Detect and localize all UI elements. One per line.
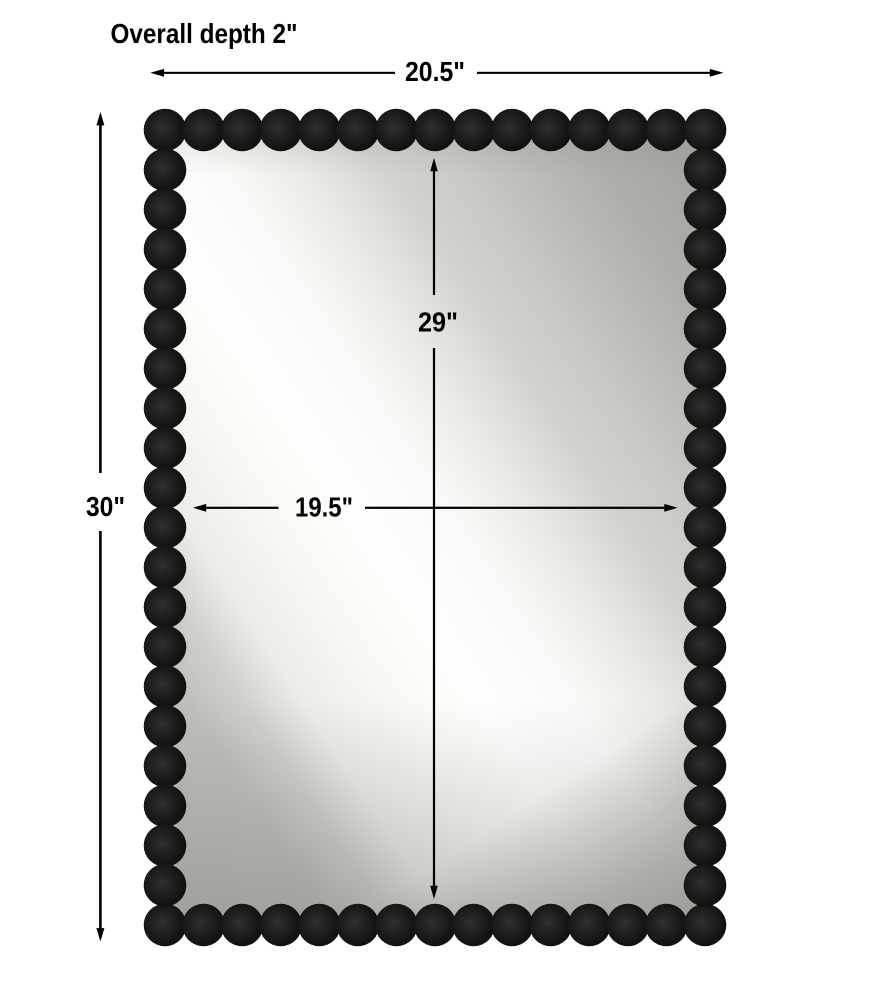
svg-text:20.5": 20.5"	[405, 56, 465, 87]
svg-text:29": 29"	[418, 307, 458, 338]
svg-text:19.5": 19.5"	[295, 492, 353, 523]
svg-text:Overall depth 2": Overall depth 2"	[111, 18, 298, 49]
svg-text:30": 30"	[86, 491, 125, 522]
